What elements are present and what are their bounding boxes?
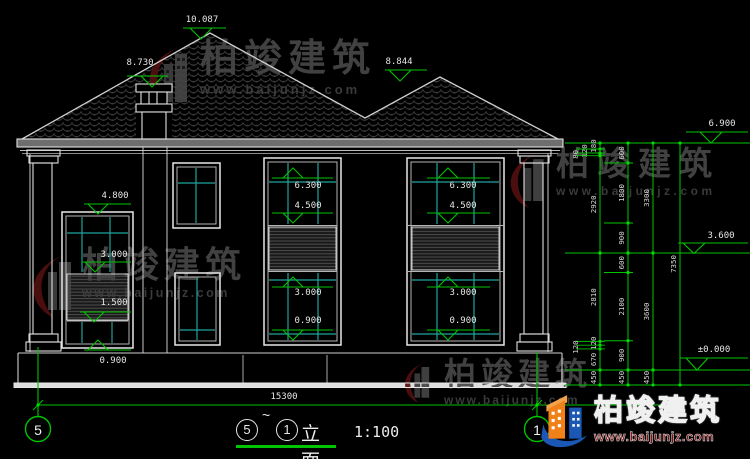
dim-chain-label: 600 — [617, 256, 626, 269]
window-mark-label: 6.300 — [293, 181, 323, 191]
bay-mark-label: 1.500 — [96, 298, 132, 308]
title-name: 立面图 — [301, 419, 322, 459]
dim-chain-label: 2920 — [589, 195, 598, 213]
zero-level-label: ±0.000 — [692, 345, 736, 355]
dim-chain-label: 120 — [571, 340, 580, 353]
roof-left-elevation-label: 8.730 — [122, 58, 158, 68]
dim-tick-dot — [599, 152, 602, 155]
window-mark-label: 0.900 — [448, 316, 478, 326]
dim-tick-dot — [599, 142, 602, 145]
dim-tick-dot — [627, 162, 630, 165]
company-logo-icon — [538, 391, 590, 449]
second-floor-level-label: 3.600 — [703, 231, 739, 241]
overall-width-label: 15300 — [262, 392, 306, 402]
dim-chain-label: 450 — [589, 371, 598, 384]
dim-chain-label: 2100 — [617, 298, 626, 316]
dim-chain-label: 7350 — [669, 255, 678, 273]
dim-chain-label: 450 — [642, 371, 651, 384]
bay-mark-label: 4.800 — [97, 191, 133, 201]
dim-tick-dot — [627, 384, 630, 387]
dim-chain-label: 3600 — [642, 303, 651, 321]
dim-tick-dot — [627, 271, 630, 274]
title-axis-to-bubble: 1 — [276, 419, 298, 441]
dim-tick-dot — [599, 154, 602, 157]
dim-chain-label: 1800 — [617, 184, 626, 202]
dim-chain-label: 900 — [617, 231, 626, 244]
roof-right-elevation-label: 8.844 — [381, 57, 417, 67]
dim-tick-dot — [627, 369, 630, 372]
right-window-marks — [427, 168, 490, 340]
dim-tick-dot — [599, 340, 602, 343]
dim-tick-dot — [599, 384, 602, 387]
dim-tick-dot — [627, 339, 630, 342]
dim-tick-dot — [627, 222, 630, 225]
dim-tick-dot — [599, 344, 602, 347]
title-separator: ~ — [262, 407, 270, 423]
dim-chain-label: 120 — [589, 337, 598, 350]
company-logo-url: www.baijunjz.com — [594, 429, 722, 444]
dim-tick-dot — [599, 252, 602, 255]
bay-mark-label: 3.000 — [96, 250, 132, 260]
window-mark-label: 4.500 — [293, 201, 323, 211]
window-mark-label: 4.500 — [448, 201, 478, 211]
bay-sill-label: 0.900 — [95, 356, 131, 366]
dim-tick-dot — [679, 142, 682, 145]
dim-tick-dot — [679, 384, 682, 387]
dim-chain-label: 600 — [617, 146, 626, 159]
dimension-chains: 1801208029202810120120670450600180090060… — [571, 139, 681, 386]
dim-chain-label: 670 — [589, 353, 598, 366]
dim-tick-dot — [652, 369, 655, 372]
dim-chain-label: 900 — [617, 349, 626, 362]
dim-tick-dot — [652, 142, 655, 145]
dim-chain-label: 3300 — [642, 189, 651, 207]
title-scale: 1:100 — [354, 423, 399, 441]
title-axis-from-bubble: 5 — [236, 419, 258, 441]
window-mark-label: 3.000 — [448, 288, 478, 298]
window-mark-label: 3.000 — [293, 288, 323, 298]
eave-level-label: 6.900 — [703, 119, 741, 129]
dim-chain-label: 2810 — [589, 288, 598, 306]
window-mark-label: 0.900 — [293, 316, 323, 326]
ridge-elevation-label: 10.087 — [180, 15, 224, 25]
middle-window-marks — [272, 168, 333, 340]
dim-tick-dot — [652, 384, 655, 387]
dim-tick-dot — [627, 252, 630, 255]
window-mark-label: 6.300 — [448, 181, 478, 191]
company-logo: 柏竣建筑 www.baijunjz.com — [538, 391, 722, 449]
dim-tick-dot — [599, 148, 602, 151]
bay-window-marks — [80, 204, 131, 350]
dim-tick-dot — [599, 348, 602, 351]
dim-tick-dot — [652, 252, 655, 255]
dim-tick-dot — [627, 142, 630, 145]
dim-chain-label: 80 — [571, 150, 580, 159]
title-underline — [236, 445, 336, 448]
dim-tick-dot — [599, 369, 602, 372]
dim-chain-label: 450 — [617, 371, 626, 384]
dim-chain-label: 180 — [589, 139, 598, 152]
elevation-drawing-canvas: 柏竣建筑 www.baijunjz.com 柏竣建筑 www.baijunjz.… — [0, 0, 750, 459]
axis-number-left: 5 — [30, 422, 46, 438]
company-logo-brand: 柏竣建筑 — [594, 397, 722, 426]
